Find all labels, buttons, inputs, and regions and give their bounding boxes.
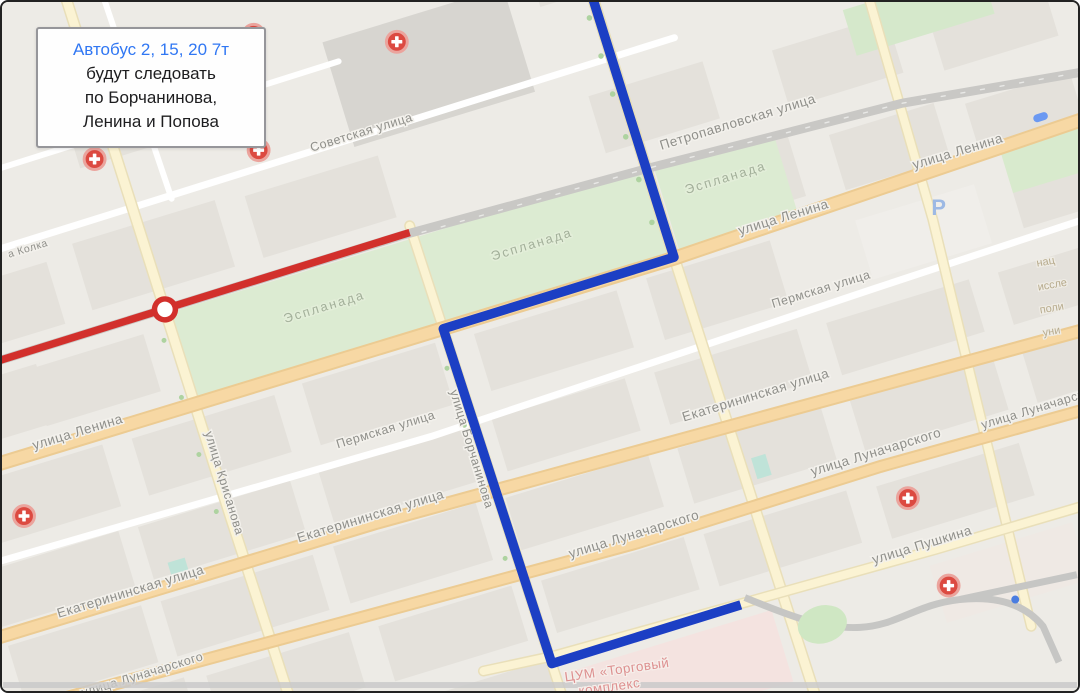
medical-cross-icon (84, 149, 105, 170)
medical-cross-icon (386, 31, 407, 52)
medical-cross-icon (14, 506, 35, 527)
direction-dot-icon (1011, 596, 1019, 604)
detour-bus-routes: Автобус 2, 15, 20 7т (42, 38, 260, 62)
detour-notice-callout: Автобус 2, 15, 20 7т будут следовать по … (36, 27, 266, 148)
parking-icon: Р (931, 195, 946, 220)
stop-circle-marker (152, 296, 178, 322)
map-edge-strip (3, 682, 1077, 688)
medical-cross-icon (938, 575, 959, 596)
detour-text-line1: будут следовать (42, 62, 260, 86)
map-canvas[interactable]: Советская улица Петропавловская улица Эс… (0, 0, 1080, 693)
detour-text-line2: по Борчанинова, (42, 86, 260, 110)
detour-text-line3: Ленина и Попова (42, 110, 260, 134)
medical-cross-icon (897, 488, 918, 509)
